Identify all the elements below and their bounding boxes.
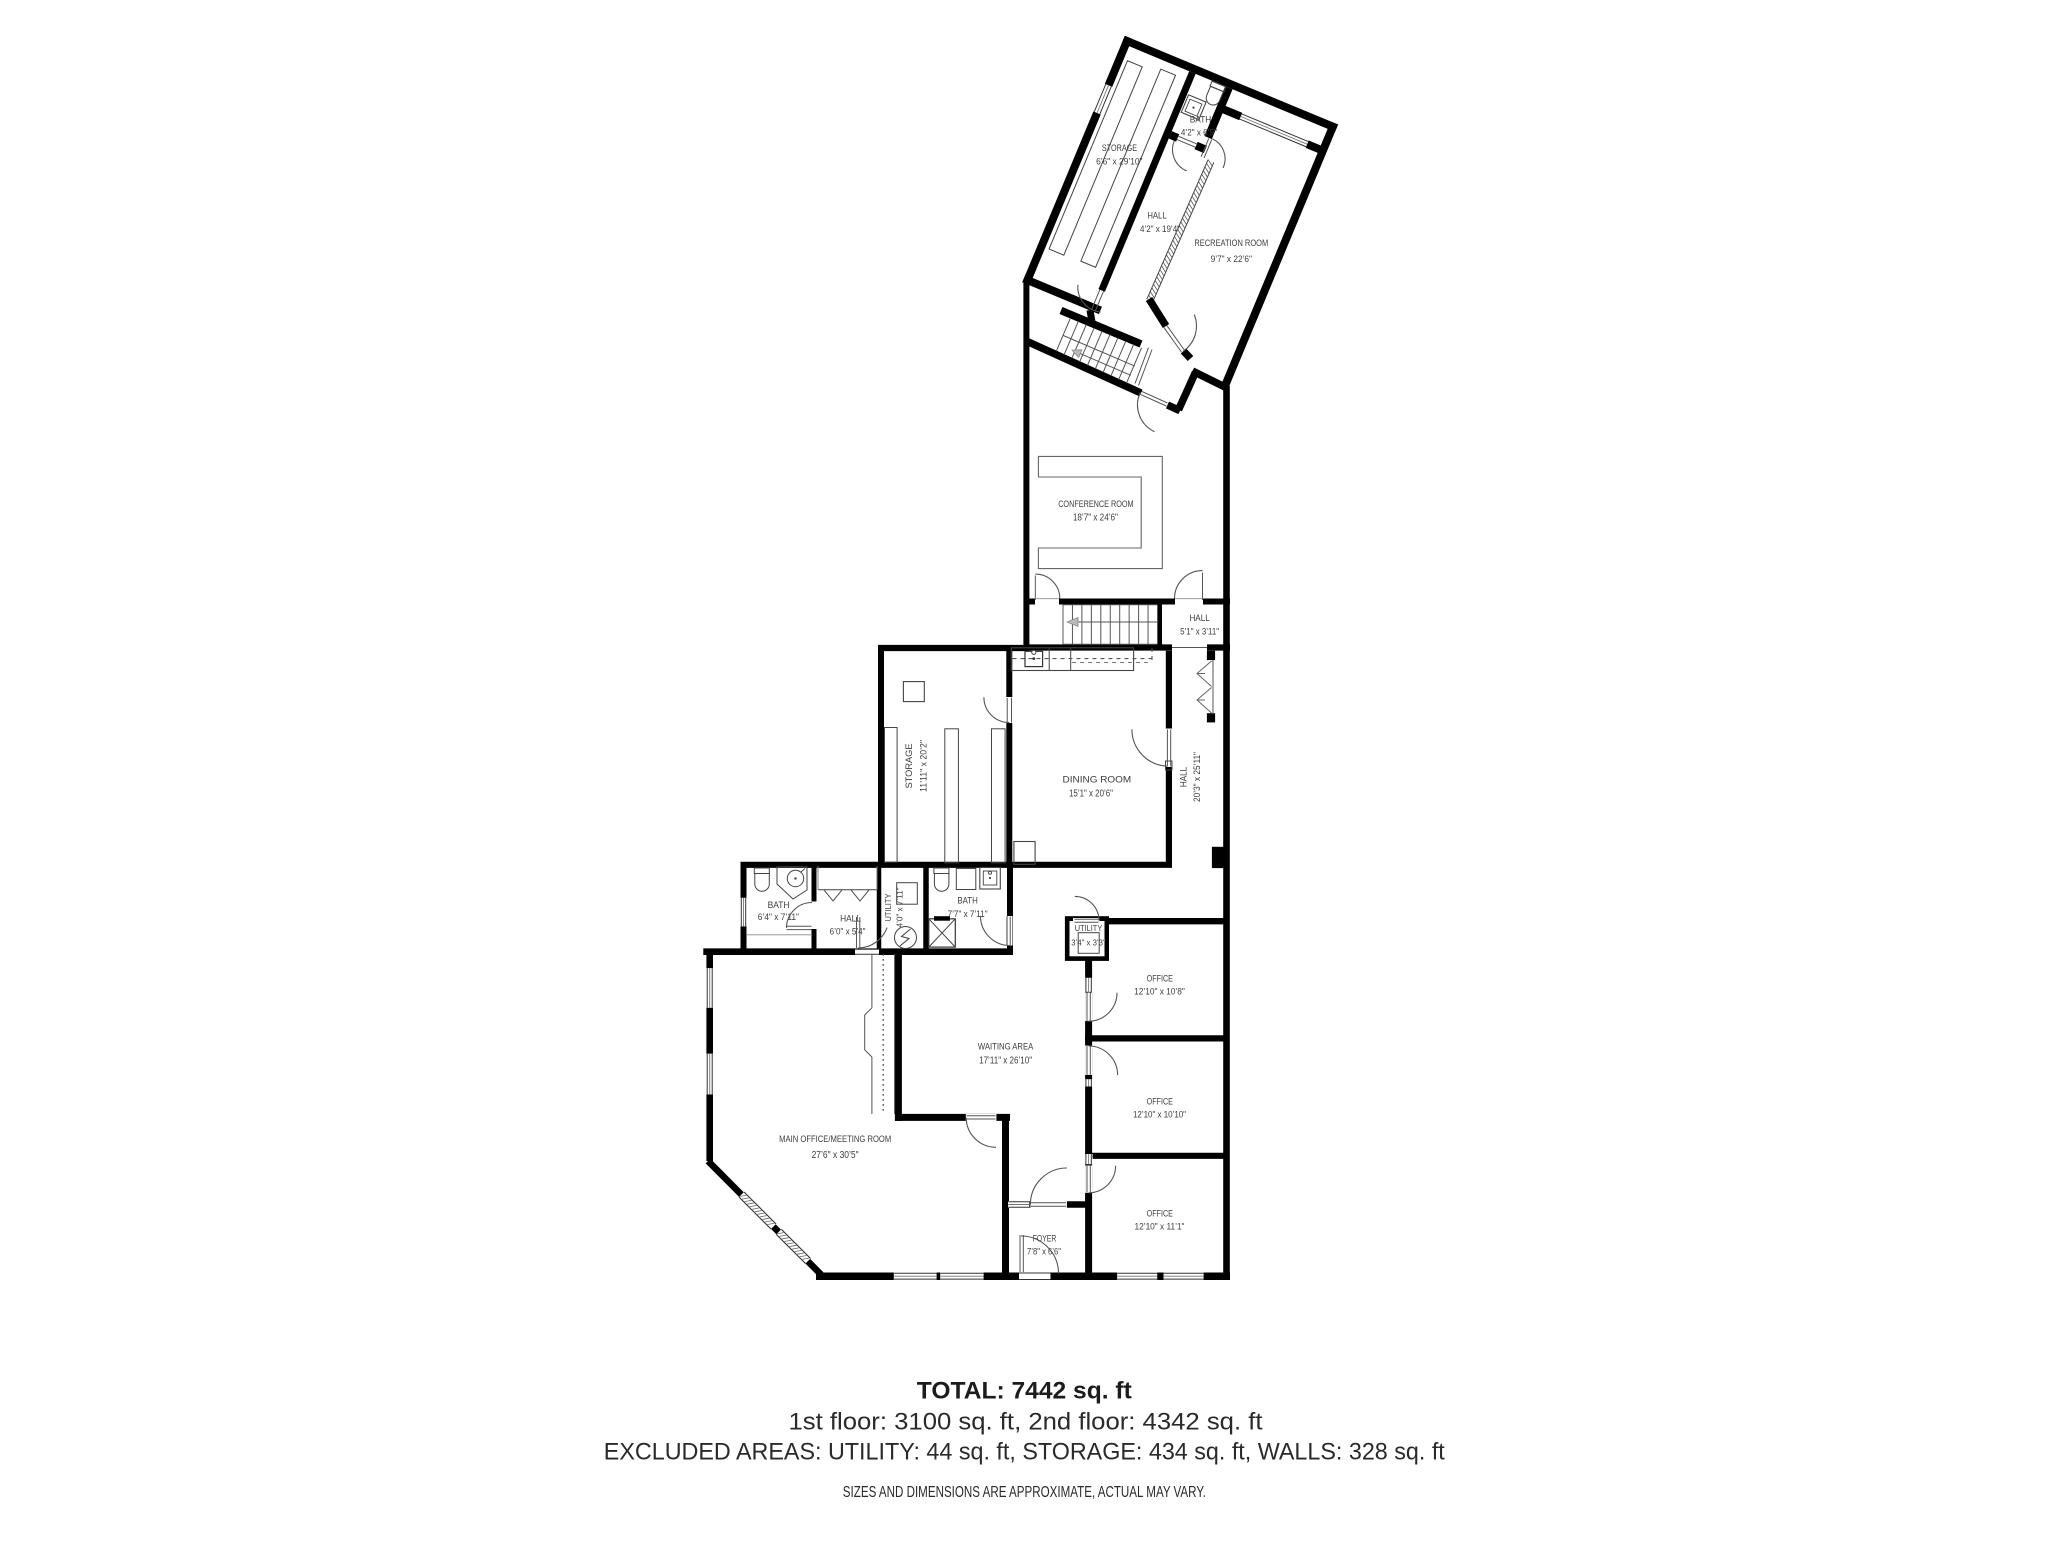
- svg-text:WAITING AREA: WAITING AREA: [978, 1041, 1034, 1052]
- svg-text:UTILITY: UTILITY: [884, 893, 893, 922]
- svg-text:OFFICE: OFFICE: [1147, 973, 1173, 984]
- svg-text:RECREATION ROOM: RECREATION ROOM: [1194, 238, 1268, 249]
- svg-text:18’7" x 24’6": 18’7" x 24’6": [1073, 513, 1119, 524]
- svg-text:9’7" x 22’6": 9’7" x 22’6": [1211, 254, 1252, 264]
- svg-text:HALL: HALL: [1147, 210, 1166, 221]
- svg-text:7’8" x 6’6": 7’8" x 6’6": [1027, 1247, 1061, 1257]
- svg-text:17’11" x 26’10": 17’11" x 26’10": [979, 1056, 1032, 1067]
- svg-text:SIZES AND DIMENSIONS ARE APPRO: SIZES AND DIMENSIONS ARE APPROXIMATE, AC…: [843, 1484, 1206, 1501]
- svg-text:12’10" x 10’10": 12’10" x 10’10": [1133, 1110, 1186, 1120]
- svg-text:UTILITY: UTILITY: [1075, 924, 1103, 933]
- svg-text:HALL: HALL: [1179, 767, 1190, 787]
- svg-text:6’6" x 29’10": 6’6" x 29’10": [1096, 156, 1142, 166]
- svg-text:STORAGE: STORAGE: [1102, 143, 1137, 154]
- svg-text:OFFICE: OFFICE: [1147, 1096, 1173, 1107]
- svg-text:HALL: HALL: [1189, 613, 1209, 624]
- svg-text:3’4" x 3’3": 3’4" x 3’3": [1071, 939, 1106, 948]
- svg-text:OFFICE: OFFICE: [1147, 1208, 1173, 1219]
- svg-text:12’10" x 10’8": 12’10" x 10’8": [1134, 987, 1185, 997]
- svg-text:15’1" x 20’6": 15’1" x 20’6": [1069, 789, 1113, 800]
- svg-text:4’0" x 7’11": 4’0" x 7’11": [896, 887, 905, 927]
- svg-text:11’11" x 20’2": 11’11" x 20’2": [919, 740, 929, 792]
- svg-text:CONFERENCE ROOM: CONFERENCE ROOM: [1058, 499, 1133, 510]
- svg-text:27’6" x 30’5": 27’6" x 30’5": [812, 1150, 859, 1161]
- svg-text:12’10" x 11’1": 12’10" x 11’1": [1135, 1222, 1185, 1232]
- svg-text:STORAGE: STORAGE: [904, 744, 915, 789]
- svg-text:4’2" x 6’9": 4’2" x 6’9": [1181, 128, 1217, 138]
- svg-text:6’0" x 5’4": 6’0" x 5’4": [830, 927, 866, 937]
- svg-text:20’3" x 25’11": 20’3" x 25’11": [1192, 752, 1202, 802]
- svg-text:TOTAL: 7442 sq. ft: TOTAL: 7442 sq. ft: [917, 1378, 1132, 1405]
- svg-text:BATH: BATH: [1190, 114, 1212, 125]
- svg-text:1st floor: 3100 sq. ft, 2nd fl: 1st floor: 3100 sq. ft, 2nd floor: 4342 …: [789, 1409, 1263, 1436]
- svg-text:DINING ROOM: DINING ROOM: [1063, 775, 1132, 786]
- svg-text:BATH: BATH: [768, 900, 790, 911]
- svg-text:EXCLUDED AREAS: UTILITY: 44 sq: EXCLUDED AREAS: UTILITY: 44 sq. ft, STOR…: [604, 1439, 1445, 1466]
- svg-text:MAIN OFFICE/MEETING ROOM: MAIN OFFICE/MEETING ROOM: [779, 1134, 891, 1145]
- svg-text:HALL: HALL: [840, 914, 861, 925]
- svg-text:5’1" x 3’11": 5’1" x 3’11": [1180, 627, 1219, 637]
- svg-text:6’4" x 7’11": 6’4" x 7’11": [758, 912, 799, 922]
- svg-text:7’7" x 7’11": 7’7" x 7’11": [948, 909, 988, 919]
- svg-text:BATH: BATH: [957, 895, 978, 906]
- svg-text:4’2" x 19’4": 4’2" x 19’4": [1140, 224, 1180, 234]
- svg-text:FOYER: FOYER: [1033, 1234, 1057, 1245]
